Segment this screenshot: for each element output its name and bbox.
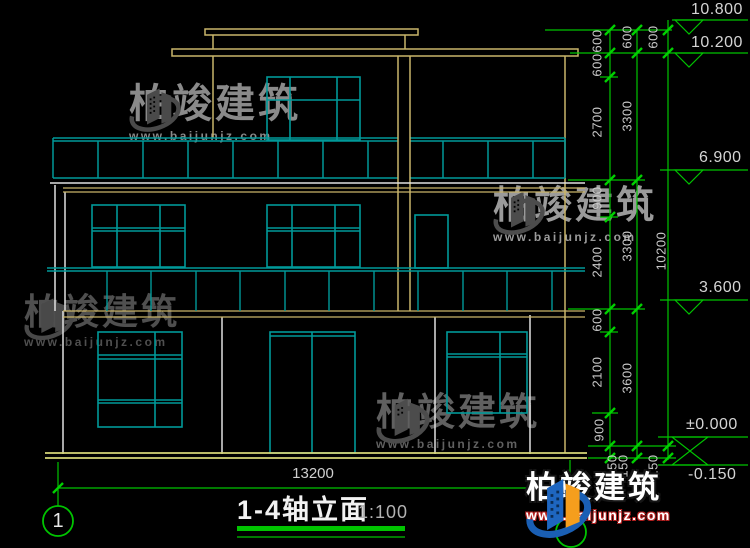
dim-label: 3300 (621, 101, 634, 132)
title-underline (237, 526, 405, 537)
window-band-3f (53, 138, 565, 178)
drawing-scale: 1:100 (358, 503, 408, 521)
dimension-ticks (53, 25, 673, 493)
dim-label: 600 (591, 308, 604, 331)
brand-logo-icon (526, 472, 596, 544)
windows-2f (92, 205, 448, 268)
dim-label: 2100 (591, 357, 604, 388)
entrance-door (270, 332, 355, 453)
elevation-label: -0.150 (688, 467, 736, 483)
dim-label: 900 (591, 186, 604, 209)
elevation-label: 3.600 (699, 280, 742, 296)
dim-label: 10200 (655, 232, 668, 271)
elevation-label: ±0.000 (686, 417, 738, 433)
wall-mask (398, 136, 410, 182)
dim-label: 2700 (591, 107, 604, 138)
drawing-title: 1-4轴立面 (237, 497, 369, 524)
elevation-label: 6.900 (699, 150, 742, 166)
dim-label: 3600 (621, 363, 634, 394)
bottom-dim-label: 13200 (292, 466, 334, 481)
dim-label: 600 (591, 53, 604, 76)
dim-label: 600 (621, 25, 634, 48)
railing-band-2f (47, 268, 585, 311)
brand-logo: 柏竣建筑 www.baijunjz.com (526, 472, 671, 523)
dim-label: 600 (591, 29, 604, 52)
elevation-label: 10.800 (691, 2, 743, 18)
cad-elevation-sheet: 柏竣建筑 www.baijunjz.com 柏竣建筑 www.baijunjz.… (0, 0, 750, 548)
dim-label: 600 (647, 25, 660, 48)
elevation-markers (658, 20, 748, 465)
ground-line (45, 453, 587, 458)
penthouse-window (267, 77, 360, 140)
elevation-drawing (0, 0, 750, 548)
dim-label: 2400 (591, 247, 604, 278)
elevation-label: 10.200 (691, 35, 743, 51)
dim-label: 900 (593, 418, 606, 441)
axis-number: 1 (52, 511, 63, 531)
roof-lines (172, 29, 578, 453)
dim-label: 3300 (621, 231, 634, 262)
